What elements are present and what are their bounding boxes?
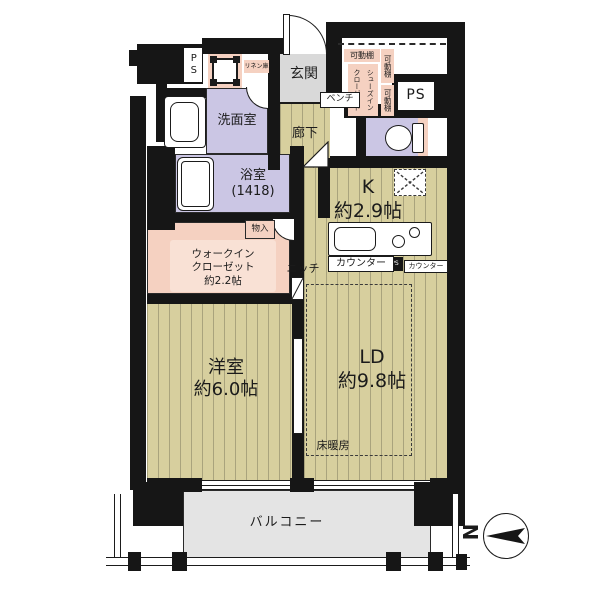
compass-needle [486, 526, 526, 546]
balcony-bottom-rail [106, 557, 470, 566]
rail-post-1 [128, 552, 141, 571]
wall-top-left-notch [129, 50, 139, 66]
meterbox-corner-tr [233, 56, 240, 63]
youshitsu-name: 洋室 [208, 357, 244, 380]
wall-top-left-of-door [202, 38, 288, 54]
meterbox-corner-br [233, 79, 240, 86]
bath-name: 浴室 [240, 168, 266, 184]
wall-right-outer [447, 22, 465, 490]
front-door-swing-arc [288, 15, 327, 54]
wall-toilet-left [356, 114, 366, 160]
washer-icon [170, 102, 199, 142]
ld-name: LD [359, 346, 384, 370]
bench-label: ベンチ [320, 92, 360, 108]
floor-heating-label: 床暖房 [309, 438, 357, 453]
niche-diagonal [292, 278, 303, 299]
rail-post-5 [456, 554, 467, 570]
sliding-door-youshitsu-ld [293, 338, 303, 434]
kadoudana-right-lower-label: 可動棚 [381, 85, 394, 116]
rail-post-2 [172, 552, 187, 571]
rail-post-4 [428, 552, 443, 571]
ps-upper-right-label: PS [398, 82, 434, 110]
wic-line2: クローゼット [192, 261, 255, 274]
window-youshitsu [202, 480, 290, 490]
kitchen-size: 約2.9帖 [334, 200, 402, 224]
ps-upper-left-label: PS [184, 48, 202, 82]
wall-bottom-2 [290, 478, 314, 492]
youshitsu-size: 約6.0帖 [194, 379, 259, 402]
floor-plan: 玄関 廊下 洗面室 浴室 (1418) ウォークイン クローゼット 約2.2帖 … [0, 0, 600, 600]
bath-label: 浴室 (1418) [218, 164, 288, 204]
wall-wic-bottom [147, 294, 304, 304]
rail-post-3 [386, 552, 401, 571]
wic-size: 約2.2帖 [204, 275, 242, 288]
window-ld-midline [314, 485, 430, 486]
wall-top-right-band [326, 22, 447, 38]
stove-burner-small [409, 227, 420, 238]
counter-label: カウンター [328, 256, 394, 272]
rouka-label: 廊下 [284, 126, 326, 142]
genkan-label: 玄関 [282, 66, 326, 84]
wic-label: ウォークイン クローゼット 約2.2帖 [172, 246, 274, 290]
niche-recess [291, 277, 304, 300]
window-ld [314, 480, 430, 490]
bathtub-inner [181, 161, 210, 207]
kitchen-label: K 約2.9帖 [318, 176, 418, 224]
wic-line1: ウォークイン [192, 248, 255, 261]
roof-overhang-dashed-line [338, 43, 446, 45]
kadoudana-top-label: 可動棚 [344, 49, 380, 62]
youshitsu-label: 洋室 約6.0帖 [168, 352, 284, 406]
ld-label: LD 約9.8帖 [317, 342, 427, 398]
toilet-bowl [385, 125, 412, 151]
ld-size: 約9.8帖 [338, 370, 406, 394]
kadoudana-right-upper-label: 可動棚 [381, 49, 394, 83]
senmen-label: 洗面室 [204, 112, 270, 130]
sic-label: シューズイン クローゼット [348, 64, 378, 116]
balcony-side-rail-left [114, 494, 121, 558]
toilet-tank [412, 123, 424, 153]
rouka-ld-door [300, 141, 330, 169]
front-door-leaf [283, 14, 290, 55]
meterbox-corner-bl [210, 79, 217, 86]
bath-size: (1418) [231, 184, 274, 200]
counter-small-label: カウンター [404, 260, 448, 273]
stove-burner-large [392, 235, 405, 248]
meterbox-corner-tl [210, 56, 217, 63]
balcony-pillar-left [133, 482, 183, 526]
monoire-label: 物入 [245, 220, 275, 239]
linen-label: リネン庫 [244, 60, 269, 73]
balcony-label: バルコニー [200, 514, 374, 532]
wall-left-outer [130, 96, 146, 490]
window-youshitsu-midline [202, 485, 290, 486]
kitchen-sink [334, 227, 376, 251]
niche-label: ニッチ [284, 262, 322, 276]
wall-kitchen-top [330, 156, 447, 168]
compass-north-letter: N [458, 521, 482, 543]
kitchen-name: K [362, 176, 374, 200]
